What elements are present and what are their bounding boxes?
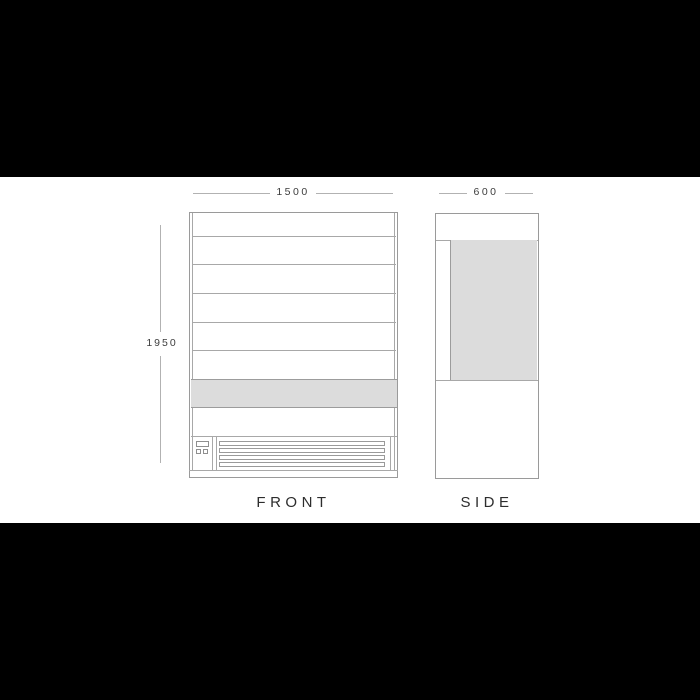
dimension-line (193, 193, 270, 194)
vent-grille-right-line (390, 437, 391, 470)
shelf-line (192, 350, 396, 351)
dimension-line (505, 193, 533, 194)
front-width-dimension: 1500 (193, 188, 393, 199)
letterbox-bottom (0, 523, 700, 700)
control-panel-divider (212, 437, 213, 470)
control-button (196, 449, 201, 454)
vent-grille-slat (219, 455, 385, 460)
vent-grille-slat (219, 441, 385, 446)
vent-grille-slat (219, 462, 385, 467)
front-view-outline (189, 212, 398, 478)
dimension-diagram: 1500 600 1950 FRONT SIDE (0, 0, 700, 700)
side-panel-bottom-line (436, 380, 538, 381)
front-bumper-band (191, 379, 397, 408)
front-height-dimension-label: 1950 (143, 338, 181, 349)
side-width-dimension: 600 (439, 188, 533, 199)
shelf-line (192, 293, 396, 294)
height-dimension-line-lower (160, 356, 161, 463)
vent-grille-slat (219, 448, 385, 453)
thermostat-display (196, 441, 209, 447)
height-dimension-line-upper (160, 225, 161, 332)
side-interior-panel (450, 240, 537, 380)
vent-grille-left-line (216, 437, 217, 470)
side-view-caption: SIDE (435, 495, 539, 510)
shelf-line (192, 322, 396, 323)
front-right-pillar-line (394, 213, 395, 471)
dimension-line (316, 193, 393, 194)
front-left-pillar-line (192, 213, 193, 471)
letterbox-top (0, 0, 700, 177)
base-top-line (191, 436, 397, 437)
control-button (203, 449, 208, 454)
dimension-line (439, 193, 467, 194)
front-width-dimension-label: 1500 (276, 187, 309, 198)
canopy-bottom-line (192, 236, 396, 237)
side-width-dimension-label: 600 (473, 187, 498, 198)
shelf-line (192, 264, 396, 265)
front-view-caption: FRONT (189, 495, 398, 510)
base-bottom-line (189, 470, 398, 471)
